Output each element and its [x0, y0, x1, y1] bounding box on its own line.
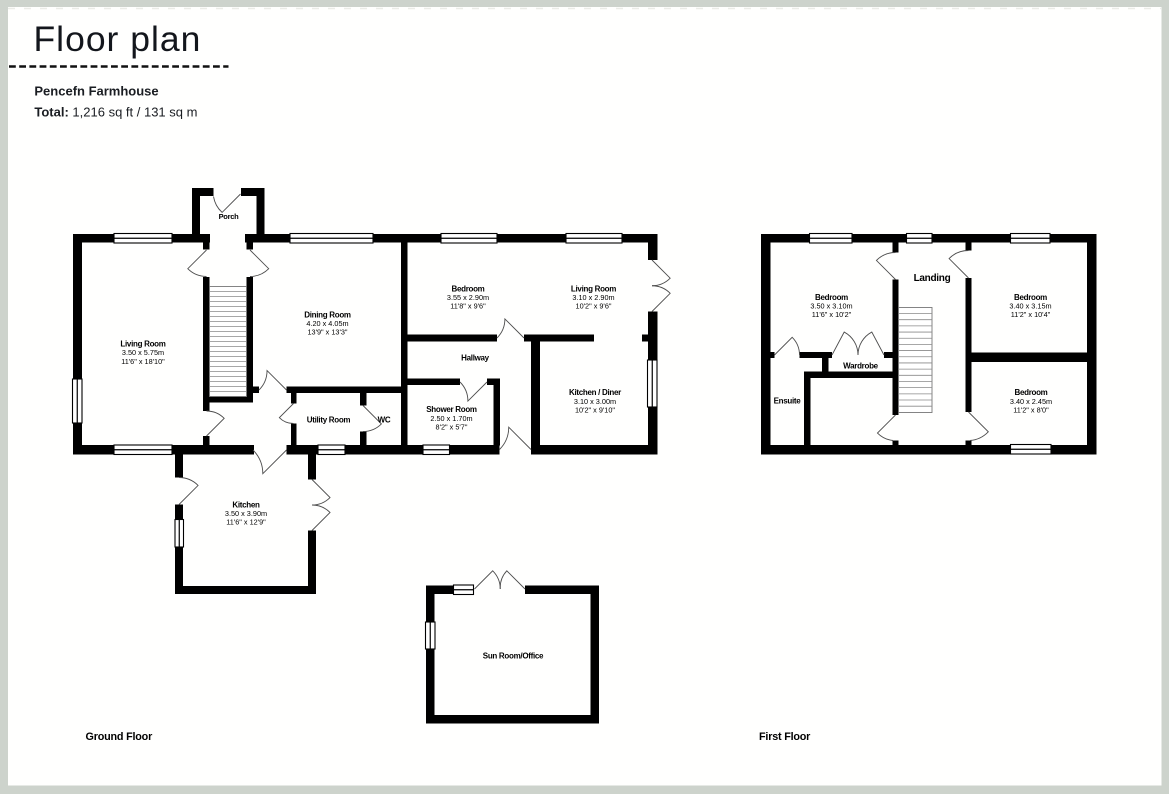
svg-text:11'6" x 12'9": 11'6" x 12'9" — [226, 518, 266, 527]
svg-text:11'6" x 18'10": 11'6" x 18'10" — [121, 357, 165, 366]
svg-text:10'2" x 9'6": 10'2" x 9'6" — [576, 302, 612, 311]
svg-text:Utility Room: Utility Room — [307, 415, 351, 424]
svg-text:11'8" x 9'6": 11'8" x 9'6" — [450, 302, 486, 311]
svg-text:11'2" x 10'4": 11'2" x 10'4" — [1011, 310, 1051, 319]
svg-text:WC: WC — [378, 415, 391, 424]
svg-text:8'2" x 5'7": 8'2" x 5'7" — [436, 422, 468, 431]
svg-text:Hallway: Hallway — [461, 353, 490, 362]
svg-text:11'2" x 8'0": 11'2" x 8'0" — [1013, 405, 1049, 414]
svg-text:Wardrobe: Wardrobe — [843, 361, 878, 370]
svg-text:Total: 1,216 sq ft / 131 sq m: Total: 1,216 sq ft / 131 sq m — [34, 104, 197, 119]
svg-text:First Floor: First Floor — [759, 731, 811, 743]
svg-text:13'9" x 13'3": 13'9" x 13'3" — [307, 328, 347, 337]
svg-text:Pencefn Farmhouse: Pencefn Farmhouse — [34, 84, 158, 99]
svg-text:Landing: Landing — [914, 273, 951, 284]
svg-text:Ensuite: Ensuite — [774, 396, 802, 405]
svg-text:Floor plan: Floor plan — [34, 19, 202, 59]
svg-text:11'6" x 10'2": 11'6" x 10'2" — [812, 310, 852, 319]
svg-text:10'2" x 9'10": 10'2" x 9'10" — [575, 405, 615, 414]
svg-text:Ground Floor: Ground Floor — [86, 731, 154, 743]
svg-text:Porch: Porch — [219, 212, 239, 221]
svg-text:Sun Room/Office: Sun Room/Office — [483, 651, 544, 660]
